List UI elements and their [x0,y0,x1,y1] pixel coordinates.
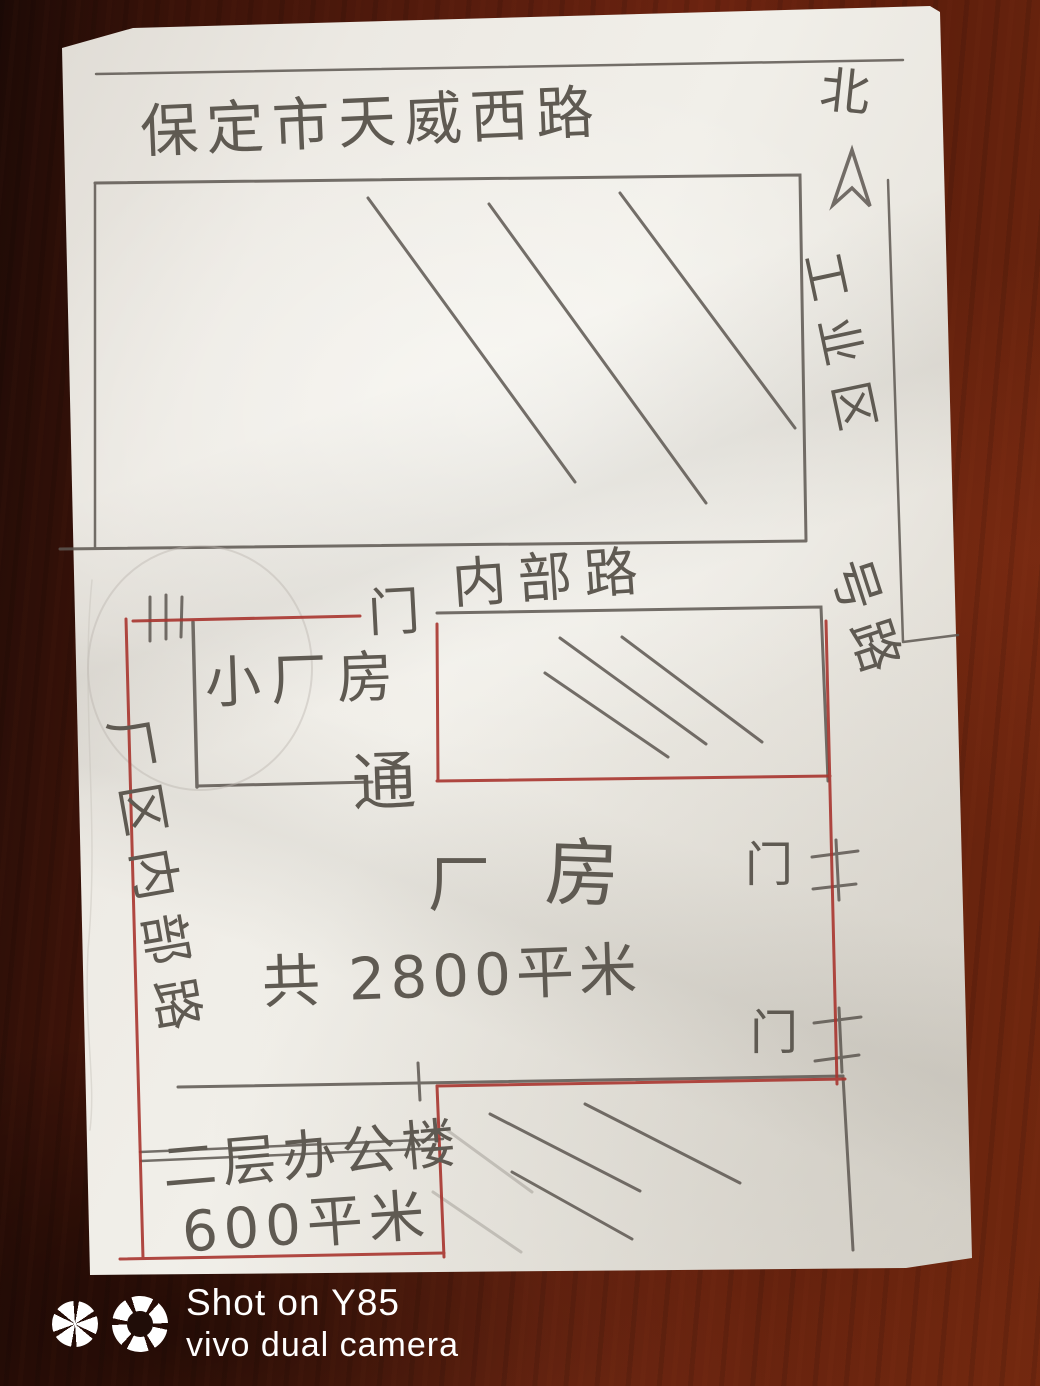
total-area-label: 共 2800平米 [261,939,643,1013]
small-factory-label: 小厂房 [204,649,404,715]
paper-wrinkle-line [87,580,92,1130]
hatch-lines-bottom-building [433,1104,740,1252]
factory-hall-label-char1: 厂 [428,852,490,917]
watermark-icons [52,1296,168,1352]
internal-road-label: 内部路 [450,543,651,613]
passage-label: 通 [351,749,417,818]
aperture-ring-icon [100,1284,179,1363]
gate-mark-upper [812,840,858,900]
aperture-icon [48,1297,101,1350]
hatch-lines-middle-building [545,637,762,757]
north-label: 北 [817,64,872,121]
gate-right-lower-label: 门 [750,1008,798,1058]
watermark-line2: vivo dual camera [186,1326,459,1365]
north-arrow-icon [833,150,870,206]
hatch-lines-top-building [368,193,795,503]
gate-right-upper-label: 门 [745,840,793,890]
gate-top-label: 门 [367,585,422,642]
factory-hall-label-char2: 房 [544,835,621,915]
photo-of-hand-drawn-floor-plan: 保定市天威西路 北 工业区 号路 内部路 门 小厂房 厂区内部路 通 厂 房 共… [0,0,1040,1386]
watermark-text: Shot on Y85 vivo dual camera [186,1282,459,1365]
floor-plan-sketch-lines [0,0,1040,1386]
camera-watermark: Shot on Y85 vivo dual camera [52,1282,459,1365]
pencil-strokes [60,60,958,1252]
watermark-line1: Shot on Y85 [186,1282,459,1324]
